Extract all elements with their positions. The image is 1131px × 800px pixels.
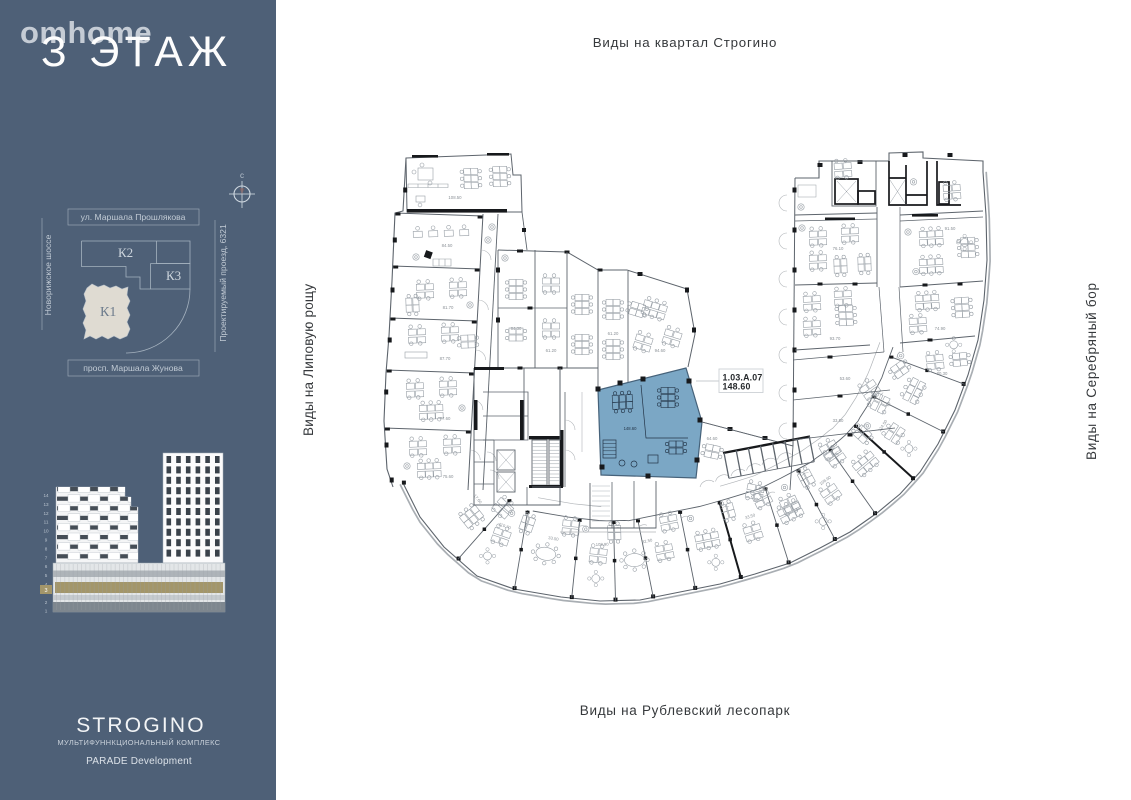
svg-text:84.30: 84.30 — [511, 326, 522, 331]
svg-text:75.60: 75.60 — [443, 474, 454, 479]
svg-text:94.60: 94.60 — [655, 348, 666, 353]
svg-text:84.50: 84.50 — [442, 243, 453, 248]
svg-text:148.60: 148.60 — [624, 426, 637, 431]
svg-text:61.20: 61.20 — [546, 348, 557, 353]
svg-text:80.30: 80.30 — [937, 371, 948, 376]
svg-text:108.90: 108.90 — [818, 474, 832, 486]
svg-text:81.70: 81.70 — [443, 305, 454, 310]
svg-text:108.90: 108.90 — [596, 542, 610, 547]
svg-text:53.60: 53.60 — [840, 376, 851, 381]
svg-text:64.60: 64.60 — [707, 436, 718, 441]
svg-text:33.50: 33.50 — [548, 535, 560, 542]
svg-text:74.90: 74.90 — [935, 326, 946, 331]
svg-text:93.70: 93.70 — [830, 336, 841, 341]
svg-text:108.50: 108.50 — [448, 195, 462, 200]
svg-text:87.70: 87.70 — [440, 356, 451, 361]
svg-text:33.50: 33.50 — [833, 418, 844, 423]
svg-text:76.10: 76.10 — [833, 246, 844, 251]
svg-text:91.50: 91.50 — [945, 226, 956, 231]
svg-text:148.60: 148.60 — [723, 382, 751, 392]
svg-text:77.60: 77.60 — [440, 416, 451, 421]
svg-text:61.20: 61.20 — [608, 331, 619, 336]
svg-text:33.50: 33.50 — [744, 512, 756, 520]
svg-text:32.50: 32.50 — [641, 537, 653, 544]
